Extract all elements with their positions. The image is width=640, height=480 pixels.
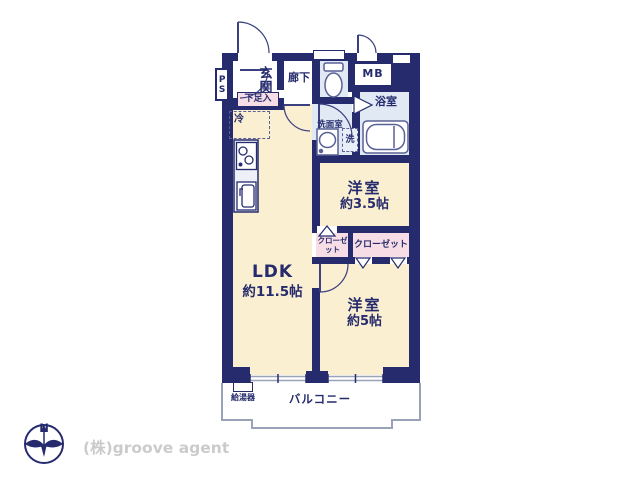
room-35-size-label: 約3.5帖 <box>320 198 409 213</box>
room-5-label: 洋室 <box>320 297 409 315</box>
kitchen-counter <box>234 140 258 212</box>
ldk-label: LDK <box>233 263 312 283</box>
room-35-label: 洋室 <box>320 180 409 198</box>
company-name: (株)groove agent <box>83 438 243 460</box>
kitchen-sink-icon <box>237 182 256 210</box>
bathtub-icon <box>363 121 408 153</box>
toilet-icon <box>324 63 343 97</box>
ldk-door-arc <box>284 105 310 131</box>
washroom-sink-icon <box>317 129 338 155</box>
compass-north-label: N <box>37 422 51 435</box>
room-5-size-label: 約5帖 <box>320 315 409 330</box>
water-heater-label: 給湯器 <box>221 393 265 403</box>
washroom-label: 洗面室 <box>313 120 347 131</box>
balcony-window-left <box>250 374 306 383</box>
balcony-window-right <box>328 374 383 383</box>
washer-label: 洗 <box>342 131 358 149</box>
entrance-door-arc <box>238 22 269 53</box>
ldk-size-label: 約11.5帖 <box>233 285 312 301</box>
mb-door-arc <box>358 35 376 53</box>
closet-wide-door-triangle-1 <box>356 258 370 268</box>
floorplan-canvas: PS 玄関 廊下 下足入 MB 浴室 洗面室 洗 冷 洋室 約3.5帖 クローゼ… <box>0 0 640 480</box>
closet-wide-label: クローゼット <box>353 234 409 256</box>
bathroom-label: 浴室 <box>364 95 408 109</box>
shoe-box-label: 下足入 <box>237 93 279 106</box>
balcony-label: バルコニー <box>270 392 370 407</box>
hallway-label: 廊下 <box>284 71 314 85</box>
fridge-label: 冷 <box>232 113 246 126</box>
mb-label: MB <box>353 64 393 85</box>
closet-small-label: クローゼット <box>317 234 348 256</box>
stove-icon <box>237 143 257 170</box>
ps-label: PS <box>216 71 228 99</box>
bedroom-door-arc <box>320 264 348 292</box>
closet-wide-door-triangle-2 <box>391 258 405 268</box>
